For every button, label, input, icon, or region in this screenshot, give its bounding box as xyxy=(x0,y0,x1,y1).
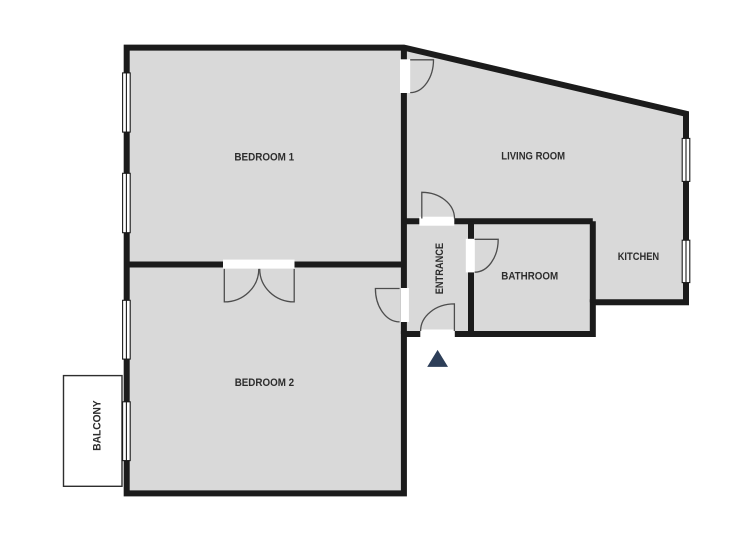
svg-text:BATHROOM: BATHROOM xyxy=(501,270,558,282)
svg-text:BEDROOM 2: BEDROOM 2 xyxy=(235,377,294,389)
svg-text:LIVING ROOM: LIVING ROOM xyxy=(501,150,565,162)
svg-text:BALCONY: BALCONY xyxy=(91,400,103,451)
svg-text:KITCHEN: KITCHEN xyxy=(618,251,660,263)
svg-text:ENTRANCE: ENTRANCE xyxy=(434,242,446,294)
svg-text:BEDROOM 1: BEDROOM 1 xyxy=(234,151,294,163)
